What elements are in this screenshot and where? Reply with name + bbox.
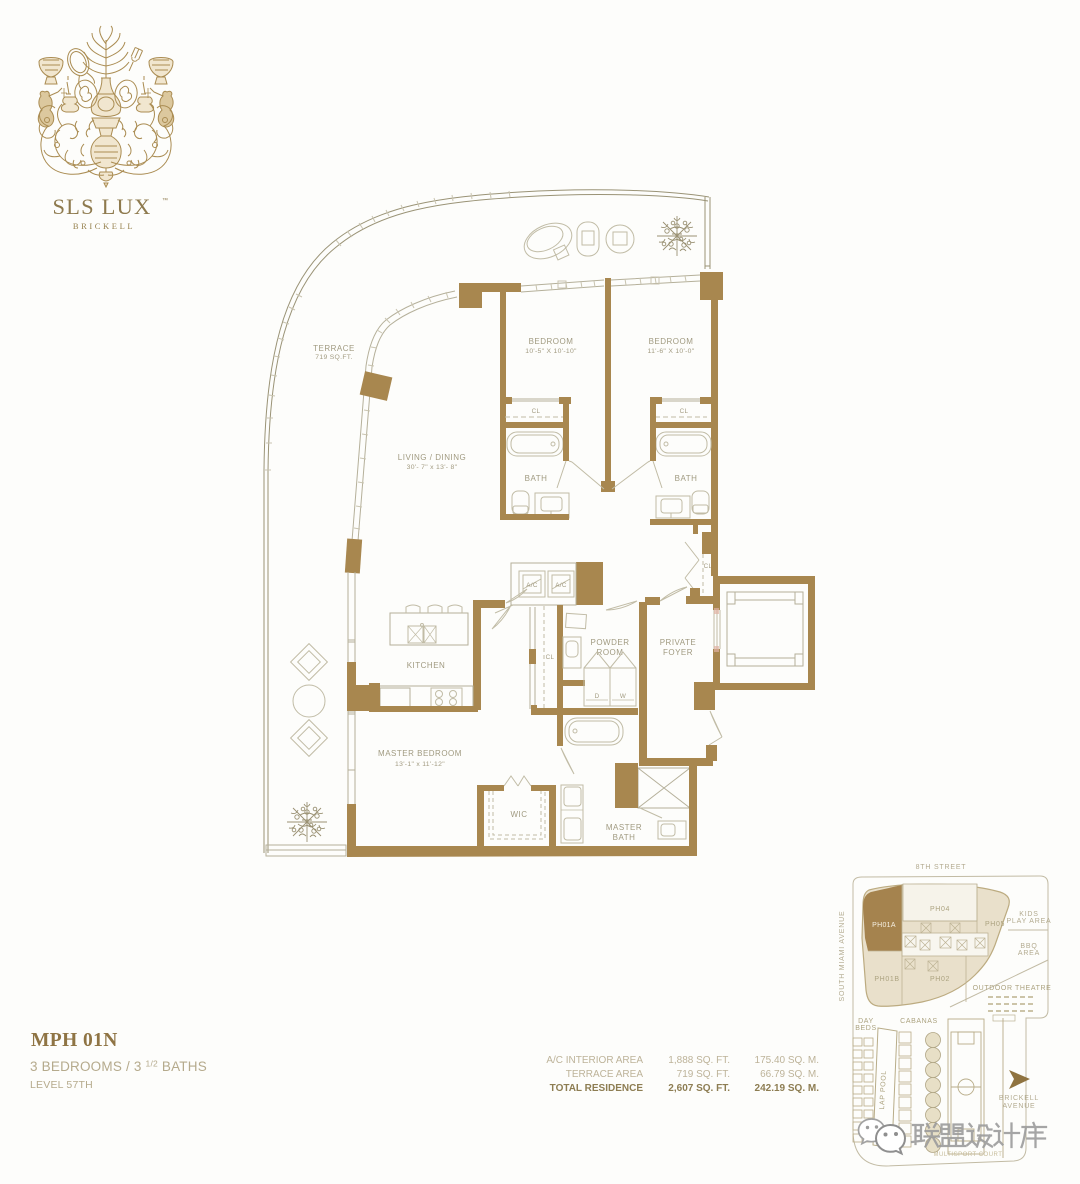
svg-text:BATH: BATH bbox=[613, 833, 636, 842]
svg-text:175.40 SQ. M.: 175.40 SQ. M. bbox=[755, 1055, 819, 1066]
svg-text:KIDS: KIDS bbox=[1019, 911, 1039, 918]
svg-text:™: ™ bbox=[162, 197, 168, 204]
svg-text:POWDER: POWDER bbox=[591, 638, 630, 647]
svg-text:D: D bbox=[595, 693, 600, 700]
svg-text:719 SQ.FT.: 719 SQ.FT. bbox=[315, 354, 352, 361]
svg-text:A/C: A/C bbox=[555, 582, 567, 589]
svg-text:MPH 01N: MPH 01N bbox=[31, 1030, 118, 1051]
svg-text:PLAY AREA: PLAY AREA bbox=[1006, 918, 1051, 925]
svg-text:BEDROOM: BEDROOM bbox=[529, 337, 574, 346]
svg-text:11'-6" X 10'-0": 11'-6" X 10'-0" bbox=[648, 348, 695, 355]
svg-text:2,607 SQ. FT.: 2,607 SQ. FT. bbox=[668, 1083, 730, 1094]
svg-text:PH04: PH04 bbox=[930, 906, 950, 913]
svg-text:WIC: WIC bbox=[510, 810, 527, 819]
svg-text:8TH STREET: 8TH STREET bbox=[916, 864, 967, 871]
svg-text:13'-1" x 11'-12": 13'-1" x 11'-12" bbox=[395, 761, 445, 768]
svg-text:BATH: BATH bbox=[525, 474, 548, 483]
svg-text:66.79 SQ. M.: 66.79 SQ. M. bbox=[760, 1069, 819, 1080]
svg-text:3 BEDROOMS / 3 1/2 BATHS: 3 BEDROOMS / 3 1/2 BATHS bbox=[30, 1059, 207, 1075]
svg-text:MULTISPORT COURT: MULTISPORT COURT bbox=[934, 1152, 1003, 1158]
svg-text:BRICKELL: BRICKELL bbox=[999, 1095, 1039, 1102]
svg-text:719 SQ. FT.: 719 SQ. FT. bbox=[677, 1069, 730, 1080]
svg-text:MASTER BEDROOM: MASTER BEDROOM bbox=[378, 749, 462, 758]
svg-text:LIVING / DINING: LIVING / DINING bbox=[398, 453, 466, 462]
svg-text:W: W bbox=[620, 693, 626, 700]
svg-text:CL: CL bbox=[532, 408, 541, 415]
svg-text:A/C INTERIOR AREA: A/C INTERIOR AREA bbox=[546, 1055, 643, 1066]
svg-text:PH02: PH02 bbox=[930, 976, 950, 983]
svg-text:PH01B: PH01B bbox=[874, 976, 899, 983]
svg-text:A/C: A/C bbox=[526, 582, 538, 589]
svg-text:242.19 SQ. M.: 242.19 SQ. M. bbox=[755, 1083, 820, 1094]
svg-text:BEDS: BEDS bbox=[855, 1025, 876, 1032]
svg-text:BATH: BATH bbox=[675, 474, 698, 483]
svg-text:TERRACE: TERRACE bbox=[313, 344, 355, 353]
svg-text:KITCHEN: KITCHEN bbox=[407, 661, 446, 670]
svg-text:MASTER: MASTER bbox=[606, 823, 642, 832]
svg-text:FOYER: FOYER bbox=[663, 648, 693, 657]
svg-text:SLS LUX: SLS LUX bbox=[52, 194, 151, 219]
svg-text:DAY: DAY bbox=[858, 1018, 874, 1025]
svg-text:LEVEL 57TH: LEVEL 57TH bbox=[30, 1079, 93, 1091]
svg-text:PRIVATE: PRIVATE bbox=[660, 638, 697, 647]
svg-text:AVENUE: AVENUE bbox=[1002, 1103, 1035, 1110]
svg-text:PH05: PH05 bbox=[985, 921, 1005, 928]
svg-text:CL: CL bbox=[546, 654, 555, 661]
svg-text:10'-5" X 10'-10": 10'-5" X 10'-10" bbox=[525, 348, 577, 355]
svg-text:30'- 7" x 13'- 8": 30'- 7" x 13'- 8" bbox=[407, 464, 458, 471]
svg-text:BRICKELL: BRICKELL bbox=[73, 221, 135, 231]
svg-text:AREA: AREA bbox=[1018, 950, 1040, 957]
svg-text:TERRACE AREA: TERRACE AREA bbox=[566, 1069, 644, 1080]
svg-text:CL: CL bbox=[680, 408, 689, 415]
svg-text:SOUTH MIAMI AVENUE: SOUTH MIAMI AVENUE bbox=[839, 911, 846, 1002]
svg-text:PH01A: PH01A bbox=[872, 922, 896, 929]
svg-text:TOTAL RESIDENCE: TOTAL RESIDENCE bbox=[550, 1083, 644, 1094]
svg-text:BBQ: BBQ bbox=[1020, 943, 1037, 950]
svg-text:CABANAS: CABANAS bbox=[900, 1018, 938, 1025]
svg-text:1,888 SQ. FT.: 1,888 SQ. FT. bbox=[668, 1055, 730, 1066]
svg-text:OUTDOOR THEATRE: OUTDOOR THEATRE bbox=[973, 985, 1052, 992]
svg-text:BEDROOM: BEDROOM bbox=[649, 337, 694, 346]
